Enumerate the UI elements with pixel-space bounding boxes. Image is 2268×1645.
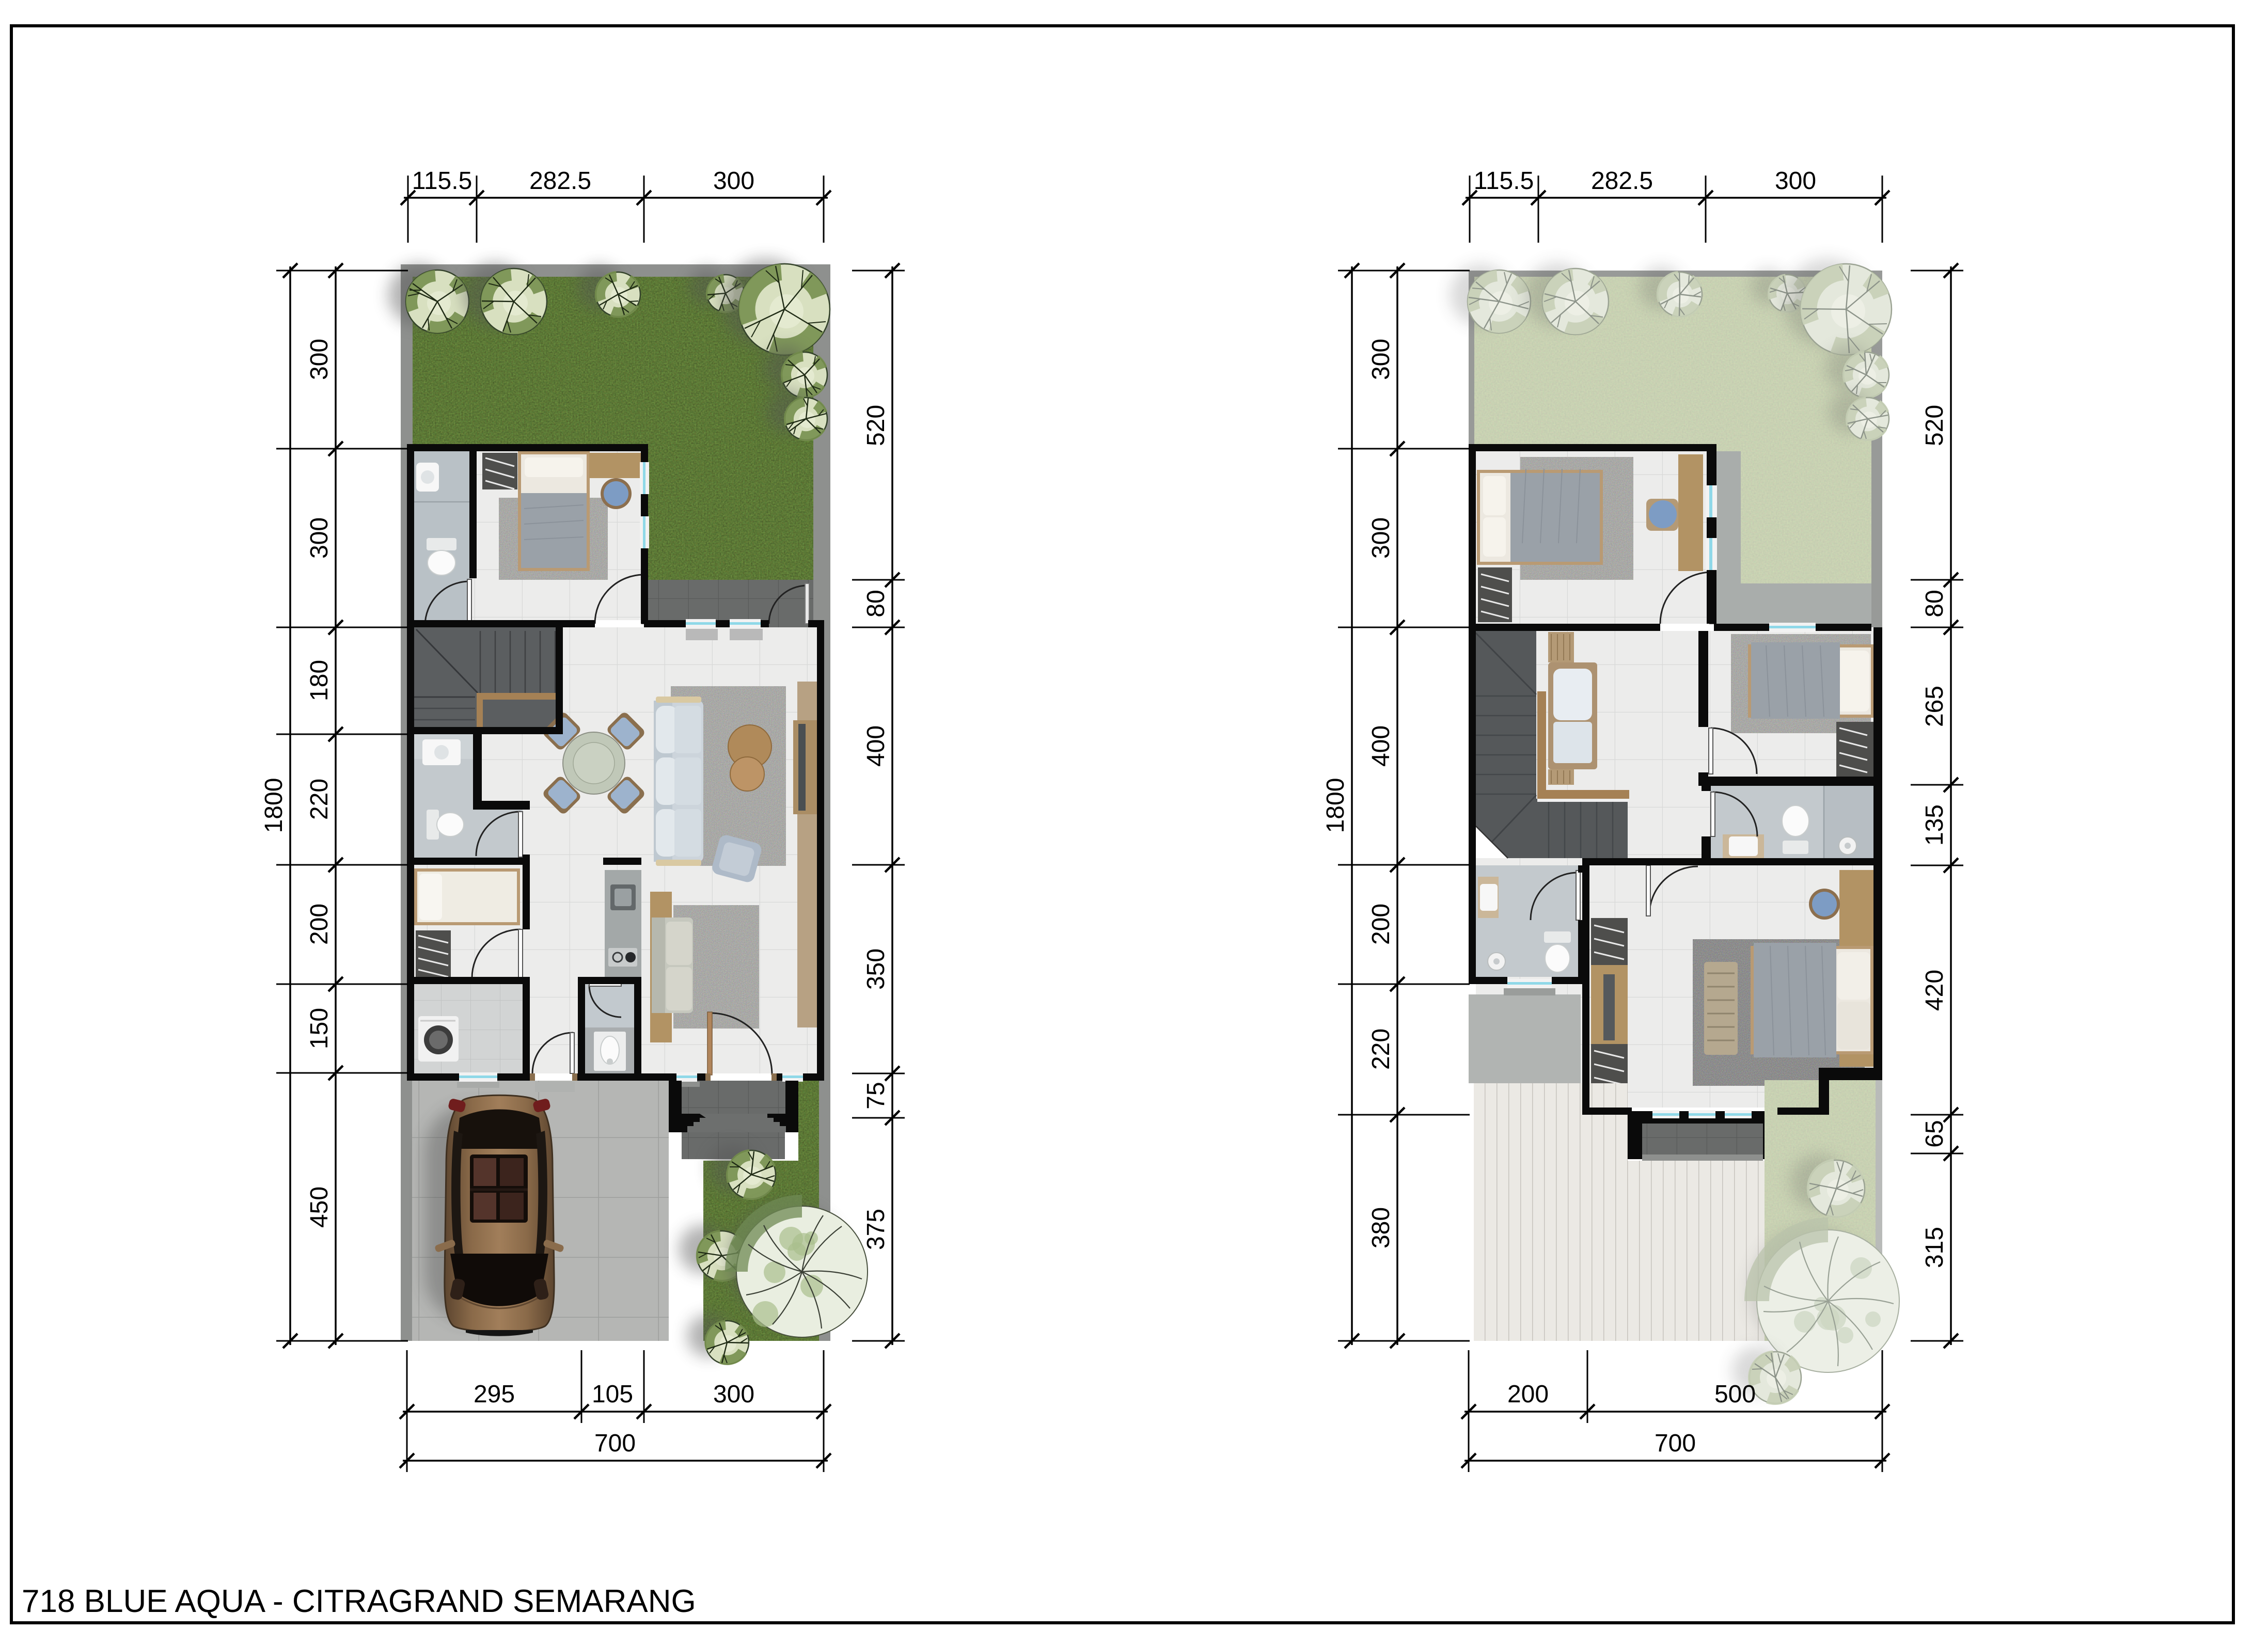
svg-text:500: 500 xyxy=(1714,1381,1756,1408)
svg-text:75: 75 xyxy=(862,1082,890,1109)
svg-text:65: 65 xyxy=(1921,1120,1948,1147)
svg-text:700: 700 xyxy=(594,1430,636,1457)
svg-text:295: 295 xyxy=(474,1381,515,1408)
svg-text:300: 300 xyxy=(306,339,333,380)
svg-text:282.5: 282.5 xyxy=(1591,167,1653,195)
svg-text:420: 420 xyxy=(1921,970,1948,1011)
svg-text:300: 300 xyxy=(1367,339,1395,380)
svg-text:300: 300 xyxy=(713,167,754,195)
svg-text:115.5: 115.5 xyxy=(1474,167,1534,195)
svg-text:1800: 1800 xyxy=(260,778,288,833)
svg-text:300: 300 xyxy=(1367,517,1395,559)
svg-text:200: 200 xyxy=(306,904,333,945)
svg-text:80: 80 xyxy=(862,590,890,617)
svg-text:718 BLUE AQUA - CITRAGRAND SEM: 718 BLUE AQUA - CITRAGRAND SEMARANG xyxy=(22,1584,696,1619)
svg-text:300: 300 xyxy=(713,1381,754,1408)
svg-text:520: 520 xyxy=(862,405,890,446)
svg-text:520: 520 xyxy=(1921,405,1948,446)
svg-text:200: 200 xyxy=(1367,904,1395,945)
svg-text:135: 135 xyxy=(1921,804,1948,846)
svg-text:450: 450 xyxy=(306,1187,333,1228)
svg-text:150: 150 xyxy=(306,1008,333,1049)
svg-text:300: 300 xyxy=(1775,167,1816,195)
svg-text:700: 700 xyxy=(1655,1430,1696,1457)
svg-text:282.5: 282.5 xyxy=(529,167,591,195)
svg-text:380: 380 xyxy=(1367,1207,1395,1248)
svg-text:300: 300 xyxy=(306,517,333,559)
svg-text:220: 220 xyxy=(306,779,333,820)
svg-text:315: 315 xyxy=(1921,1227,1948,1268)
svg-text:1800: 1800 xyxy=(1322,778,1349,833)
svg-text:115.5: 115.5 xyxy=(412,167,472,195)
svg-text:105: 105 xyxy=(592,1381,633,1408)
svg-text:400: 400 xyxy=(862,725,890,767)
svg-text:180: 180 xyxy=(306,660,333,701)
svg-text:200: 200 xyxy=(1507,1381,1549,1408)
svg-text:80: 80 xyxy=(1921,590,1948,617)
svg-text:375: 375 xyxy=(862,1209,890,1250)
svg-text:350: 350 xyxy=(862,948,890,990)
svg-text:220: 220 xyxy=(1367,1029,1395,1070)
svg-text:400: 400 xyxy=(1367,725,1395,767)
svg-text:265: 265 xyxy=(1921,686,1948,727)
